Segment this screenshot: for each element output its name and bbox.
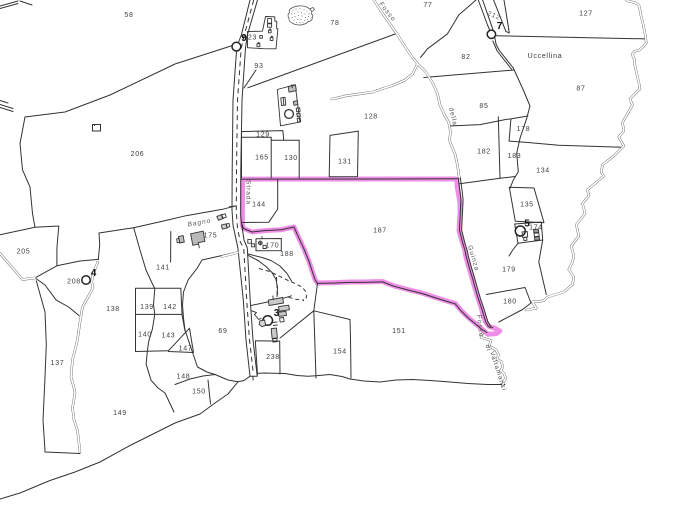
svg-text:187: 187: [373, 228, 387, 235]
svg-text:175: 175: [204, 233, 218, 240]
svg-text:69: 69: [218, 328, 227, 335]
svg-text:131: 131: [338, 159, 352, 166]
svg-text:7: 7: [497, 21, 503, 32]
svg-text:4: 4: [91, 268, 97, 279]
svg-text:150: 150: [192, 389, 206, 396]
svg-text:23: 23: [248, 35, 257, 42]
svg-text:137: 137: [51, 360, 65, 367]
svg-text:3: 3: [274, 308, 280, 319]
svg-text:147: 147: [179, 346, 193, 353]
svg-text:139: 139: [140, 304, 154, 311]
svg-text:129: 129: [256, 132, 270, 139]
svg-text:154: 154: [333, 349, 347, 356]
svg-text:78: 78: [330, 20, 339, 27]
svg-text:149: 149: [113, 410, 127, 417]
svg-text:183: 183: [508, 153, 522, 160]
svg-text:135: 135: [520, 202, 534, 209]
svg-text:174: 174: [529, 225, 543, 232]
svg-text:58: 58: [124, 12, 133, 19]
svg-text:180: 180: [503, 299, 517, 306]
svg-text:205: 205: [17, 249, 31, 256]
svg-text:151: 151: [392, 328, 406, 335]
svg-text:130: 130: [284, 155, 298, 162]
svg-text:178: 178: [517, 126, 531, 133]
svg-text:179: 179: [502, 267, 516, 274]
svg-text:77: 77: [423, 2, 432, 9]
svg-text:138: 138: [106, 306, 120, 313]
svg-text:188: 188: [280, 251, 294, 258]
svg-text:82: 82: [461, 54, 470, 61]
svg-text:165: 165: [255, 155, 269, 162]
svg-text:127: 127: [579, 11, 593, 18]
svg-text:85: 85: [479, 103, 488, 110]
svg-text:144: 144: [252, 202, 266, 209]
svg-text:238: 238: [266, 354, 280, 361]
svg-text:87: 87: [576, 86, 585, 93]
svg-text:148: 148: [177, 374, 191, 381]
svg-text:170: 170: [266, 243, 280, 250]
svg-text:128: 128: [364, 114, 378, 121]
svg-text:Strada: Strada: [245, 180, 252, 205]
svg-text:141: 141: [156, 265, 170, 272]
svg-text:Uccellina: Uccellina: [528, 53, 563, 60]
svg-text:143: 143: [162, 333, 176, 340]
svg-text:142: 142: [163, 304, 177, 311]
svg-text:9: 9: [241, 33, 247, 44]
svg-text:140: 140: [138, 332, 152, 339]
svg-text:93: 93: [254, 63, 263, 70]
svg-text:5: 5: [524, 219, 530, 230]
svg-text:206: 206: [131, 151, 145, 158]
svg-text:134: 134: [536, 168, 550, 175]
svg-text:182: 182: [477, 149, 491, 156]
svg-text:208: 208: [67, 279, 81, 286]
